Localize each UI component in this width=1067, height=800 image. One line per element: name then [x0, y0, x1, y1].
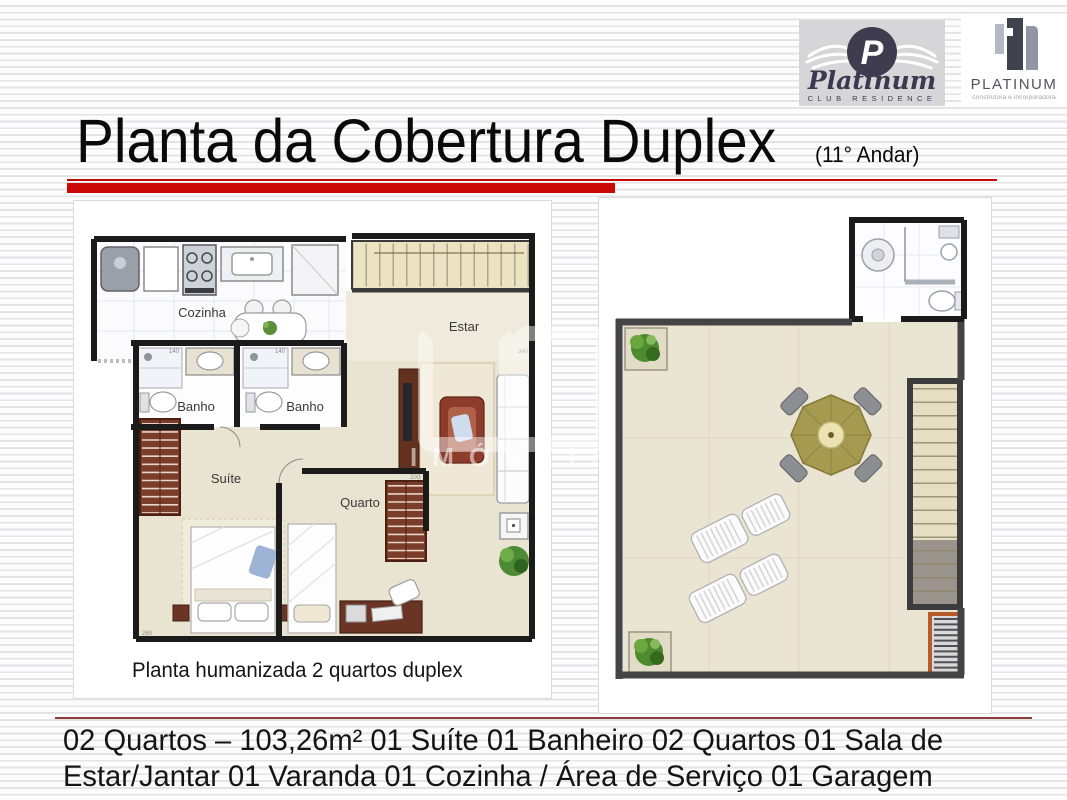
label-suite: Suíte — [211, 471, 241, 486]
dim-banho1: 140 — [169, 349, 180, 355]
footer-line-2: Estar/Jantar 01 Varanda 01 Cozinha / Áre… — [63, 759, 943, 795]
hall-area — [346, 291, 532, 361]
plant-top-left — [625, 328, 667, 370]
platinum-builder-logo: PLATINUM construtora e incorporadora — [961, 14, 1067, 107]
slide: P Platinum CLUB RESIDENCE PLATINUM const… — [0, 0, 1067, 800]
terrace-floor-plan — [599, 198, 991, 713]
umbrella-table — [778, 386, 883, 483]
club-logo-subtitle: CLUB RESIDENCE — [799, 94, 945, 103]
floor-plan-terrace-panel — [598, 197, 992, 714]
footer-rule — [55, 717, 1032, 719]
dim-estar: 340 — [518, 349, 529, 355]
terrace-bathroom — [852, 223, 964, 319]
title-block: Planta da Cobertura Duplex (11° Andar) — [76, 106, 925, 176]
floor-plan-apartment-panel: Cozinha Estar Banho Banho Suíte Quarto 1… — [73, 200, 552, 699]
footer-line-1: 02 Quartos – 103,26m² 01 Suíte 01 Banhei… — [63, 723, 943, 759]
label-estar: Estar — [449, 319, 480, 334]
platinum-club-logo: P Platinum CLUB RESIDENCE — [799, 20, 945, 106]
title-rule-thick — [67, 183, 615, 193]
floor-grate — [930, 614, 962, 676]
builder-logo-subtitle: construtora e incorporadora — [961, 94, 1067, 101]
page-title-suffix: (11° Andar) — [815, 142, 919, 168]
stairs-upper — [352, 241, 532, 291]
builder-mark-icon — [961, 14, 1067, 74]
dim-quarto: 200 — [410, 475, 421, 481]
stairs-terrace — [907, 378, 963, 610]
club-logo-name: Platinum — [799, 66, 945, 95]
label-banho-1: Banho — [177, 399, 215, 414]
label-quarto: Quarto — [340, 495, 380, 510]
dim-suite: 260 — [142, 631, 153, 637]
builder-logo-name: PLATINUM — [961, 76, 1067, 93]
dim-banho2: 140 — [275, 349, 286, 355]
apartment-floor-plan: Cozinha Estar Banho Banho Suíte Quarto 1… — [74, 201, 551, 651]
plant-bottom-left — [629, 632, 671, 674]
title-rule-thin — [67, 179, 997, 181]
plan-caption: Planta humanizada 2 quartos duplex — [132, 659, 463, 683]
label-cozinha: Cozinha — [178, 305, 226, 320]
page-title: Planta da Cobertura Duplex — [76, 106, 776, 176]
label-banho-2: Banho — [286, 399, 324, 414]
footer-description: 02 Quartos – 103,26m² 01 Suíte 01 Banhei… — [63, 723, 943, 795]
